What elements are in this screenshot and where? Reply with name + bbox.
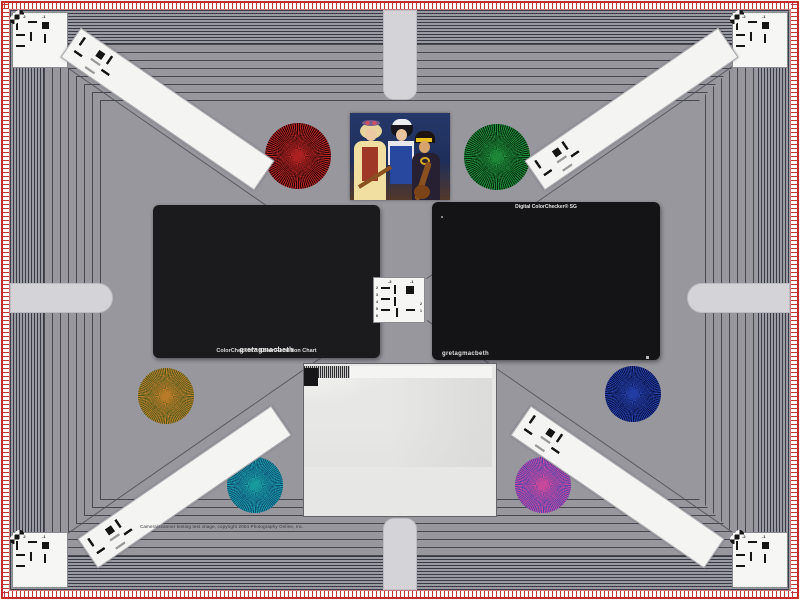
resolution-bar [748,541,757,543]
registration-tab-right [687,283,790,313]
strip-text-dash [535,444,545,452]
usaf-label: 5 [376,307,378,311]
resolution-bar [736,565,745,567]
strip-square [545,428,555,438]
usaf-square [42,542,49,549]
sg-brand-label: gretagmacbeth [442,351,489,357]
resolution-bar [79,37,86,46]
resolution-bar [394,285,396,294]
resolution-bar [736,45,745,47]
strip-text-dash [85,66,95,74]
registration-tab-bottom [383,518,417,590]
colorchecker-24-chart: gretagmacbeth ColorChecker™ Color Rendit… [153,205,380,358]
resolution-bar [16,45,25,47]
strip-text-dash [540,436,550,444]
photo-figure-center-vest [390,146,412,184]
resolution-bar [101,69,110,76]
resolution-bar [44,34,46,43]
strip-text-dash [115,542,125,550]
colorchecker-name-label: ColorChecker™ Color Rendition Chart [216,348,316,354]
usaf-label: 2 [420,302,422,306]
resolution-card-top-left: -2-1 [12,12,68,68]
sg-dot [441,216,443,218]
resolution-bar [406,309,415,311]
resolution-bar [534,160,541,169]
usaf-label: -1 [42,15,46,19]
usaf-label: -2 [388,280,392,284]
resolution-bar [748,21,757,23]
resolution-bar [551,447,560,454]
pie-marker [730,15,739,24]
resolution-bar [28,21,37,23]
ruler-ticks-bottom [4,591,796,597]
strip-square [95,50,105,60]
resolution-bar [115,519,122,528]
resolution-bar [529,415,536,424]
photo-figure-center-face [396,129,407,141]
resolution-bar [736,541,738,550]
wedge-black-end-right [304,368,318,386]
pie-marker [15,530,24,539]
colorchecker-sg-chart: Digital ColorChecker® SG gretagmacbeth [432,202,660,360]
resolution-bar [571,151,580,158]
sg-row-index-dots [441,216,444,338]
resolution-bar [30,32,32,41]
resolution-bar [30,552,32,561]
resolution-card-bottom-right: -2-1 [732,532,788,588]
usaf-label: 6 [376,314,378,318]
resolution-bar [28,541,37,543]
sg-title-label: Digital ColorChecker® SG [432,204,660,210]
pie-marker [10,15,19,24]
resolution-strip-unit [529,128,594,187]
strip-square [552,147,562,157]
siemens-star-orange [138,368,194,424]
resolution-bar [736,554,745,556]
strip-square [105,525,115,535]
siemens-star-red [265,123,331,189]
usaf-square [762,542,769,549]
usaf-label: -2 [742,15,746,19]
resolution-bar [74,50,83,57]
usaf-label: -2 [742,535,746,539]
resolution-bar [16,34,25,36]
gray-field: -2-1 -2-1 -2-1 -2-1 [10,10,790,590]
registration-tab-left [10,283,113,313]
test-target-sheet: -2-1 -2-1 -2-1 -2-1 [0,0,800,600]
resolution-bar [381,298,390,300]
siemens-star-blue [605,366,661,422]
resolution-bar [524,428,533,435]
resolution-bar [106,56,113,65]
usaf-label: -1 [410,280,414,284]
resolution-bar [764,554,766,563]
usaf-square [42,22,49,29]
usaf-label: 1 [420,309,422,313]
resolution-bar [736,34,745,36]
resolution-bar [381,287,390,289]
resolution-bar [16,541,18,550]
usaf-label: -1 [42,535,46,539]
resolution-card-bottom-left: -2-1 [12,532,68,588]
sg-grid [448,213,646,341]
resolution-bar [381,309,390,311]
resolution-bar [124,529,133,536]
registration-tab-top [383,10,417,100]
siemens-star-green [464,124,530,190]
resolution-bar [16,554,25,556]
ruler-ticks-right [791,4,797,596]
resolution-bar [394,297,396,306]
strip-text-dash [110,533,120,541]
strip-text-dash [562,164,572,172]
resolution-bar [750,32,752,41]
colorchecker-24-caption: gretagmacbeth ColorChecker™ Color Rendit… [153,345,380,356]
photo-figure-right-face [419,141,430,153]
usaf-square [406,286,414,294]
usaf-label: 2 [376,286,378,290]
resolution-bar [97,547,106,554]
resolution-bar [750,552,752,561]
frequency-sweep-target [303,363,497,517]
test-photo-musicians [350,113,450,200]
resolution-bar [16,565,25,567]
colorchecker-24-grid [153,205,364,335]
resolution-bar [44,554,46,563]
photo-figure-left-wreath [362,120,380,126]
usaf-resolution-card-center: -2-12345621 [373,277,425,323]
strip-text-dash [557,155,567,163]
resolution-bar [562,141,569,150]
resolution-bar [764,34,766,43]
gray-step-wedge [304,368,492,386]
resolution-card-top-right: -2-1 [732,12,788,68]
usaf-label: 4 [376,300,378,304]
resolution-bar [396,308,398,317]
resolution-bar [556,434,563,443]
resolution-bar [87,538,94,547]
usaf-label: -1 [762,15,766,19]
usaf-label: 3 [376,293,378,297]
usaf-label: -1 [762,535,766,539]
photo-figure-left-face [365,128,377,141]
strip-text-dash [90,58,100,66]
copyright-caption: Camera/scanner testing test image, copyr… [140,524,304,529]
resolution-bar [544,169,553,176]
photo-instrument-right-body [414,185,430,199]
sg-mark [646,356,649,359]
usaf-square [762,22,769,29]
